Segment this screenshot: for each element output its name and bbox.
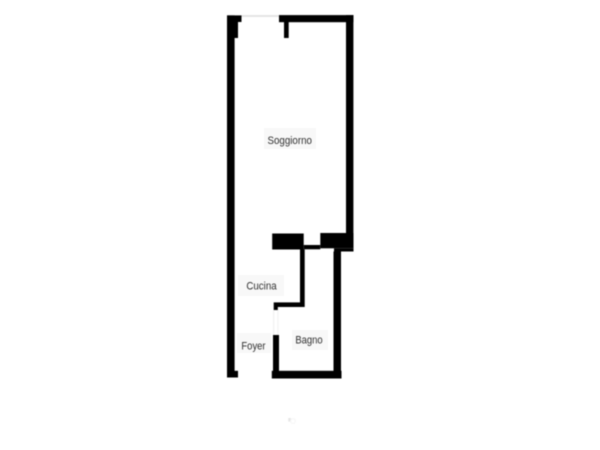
svg-text:Cucina: Cucina (246, 281, 277, 293)
svg-text:Foyer: Foyer (241, 341, 266, 353)
svg-text:Soggiorno: Soggiorno (268, 135, 312, 147)
svg-text:Bagno: Bagno (295, 334, 322, 346)
